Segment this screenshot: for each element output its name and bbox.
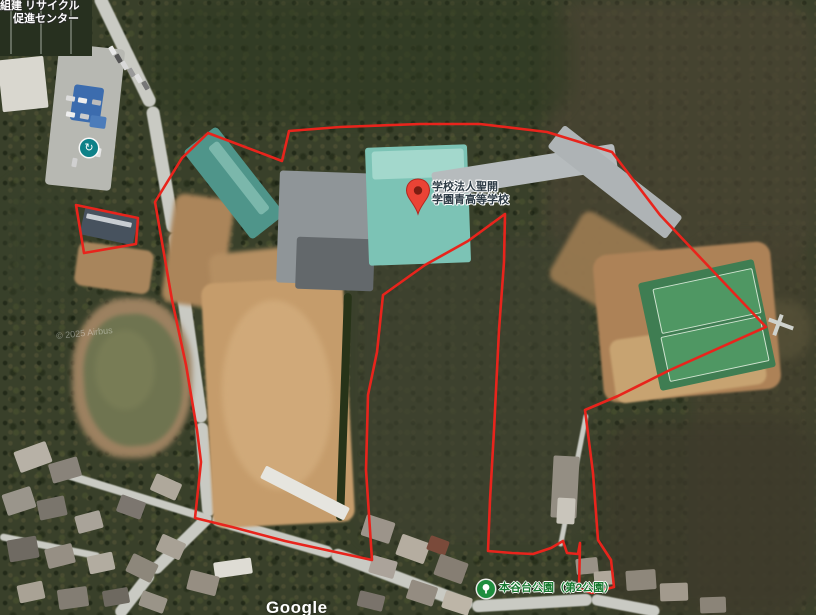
property-boundary-main-polygon — [155, 124, 766, 593]
recycle-glyph-icon: ↻ — [84, 139, 93, 157]
tree-icon — [480, 583, 492, 595]
property-boundary — [0, 0, 816, 615]
map-pin-icon[interactable] — [405, 178, 431, 216]
recycle-center-poi-icon[interactable]: ↻ — [80, 139, 98, 157]
park-poi-icon[interactable] — [477, 580, 495, 598]
satellite-map[interactable]: 組建 リサイクル 促進センター ↻ 学校法人聖開 学園青高等学校 本谷台公園（第… — [0, 0, 816, 615]
property-boundary-small-polygon — [76, 205, 138, 253]
